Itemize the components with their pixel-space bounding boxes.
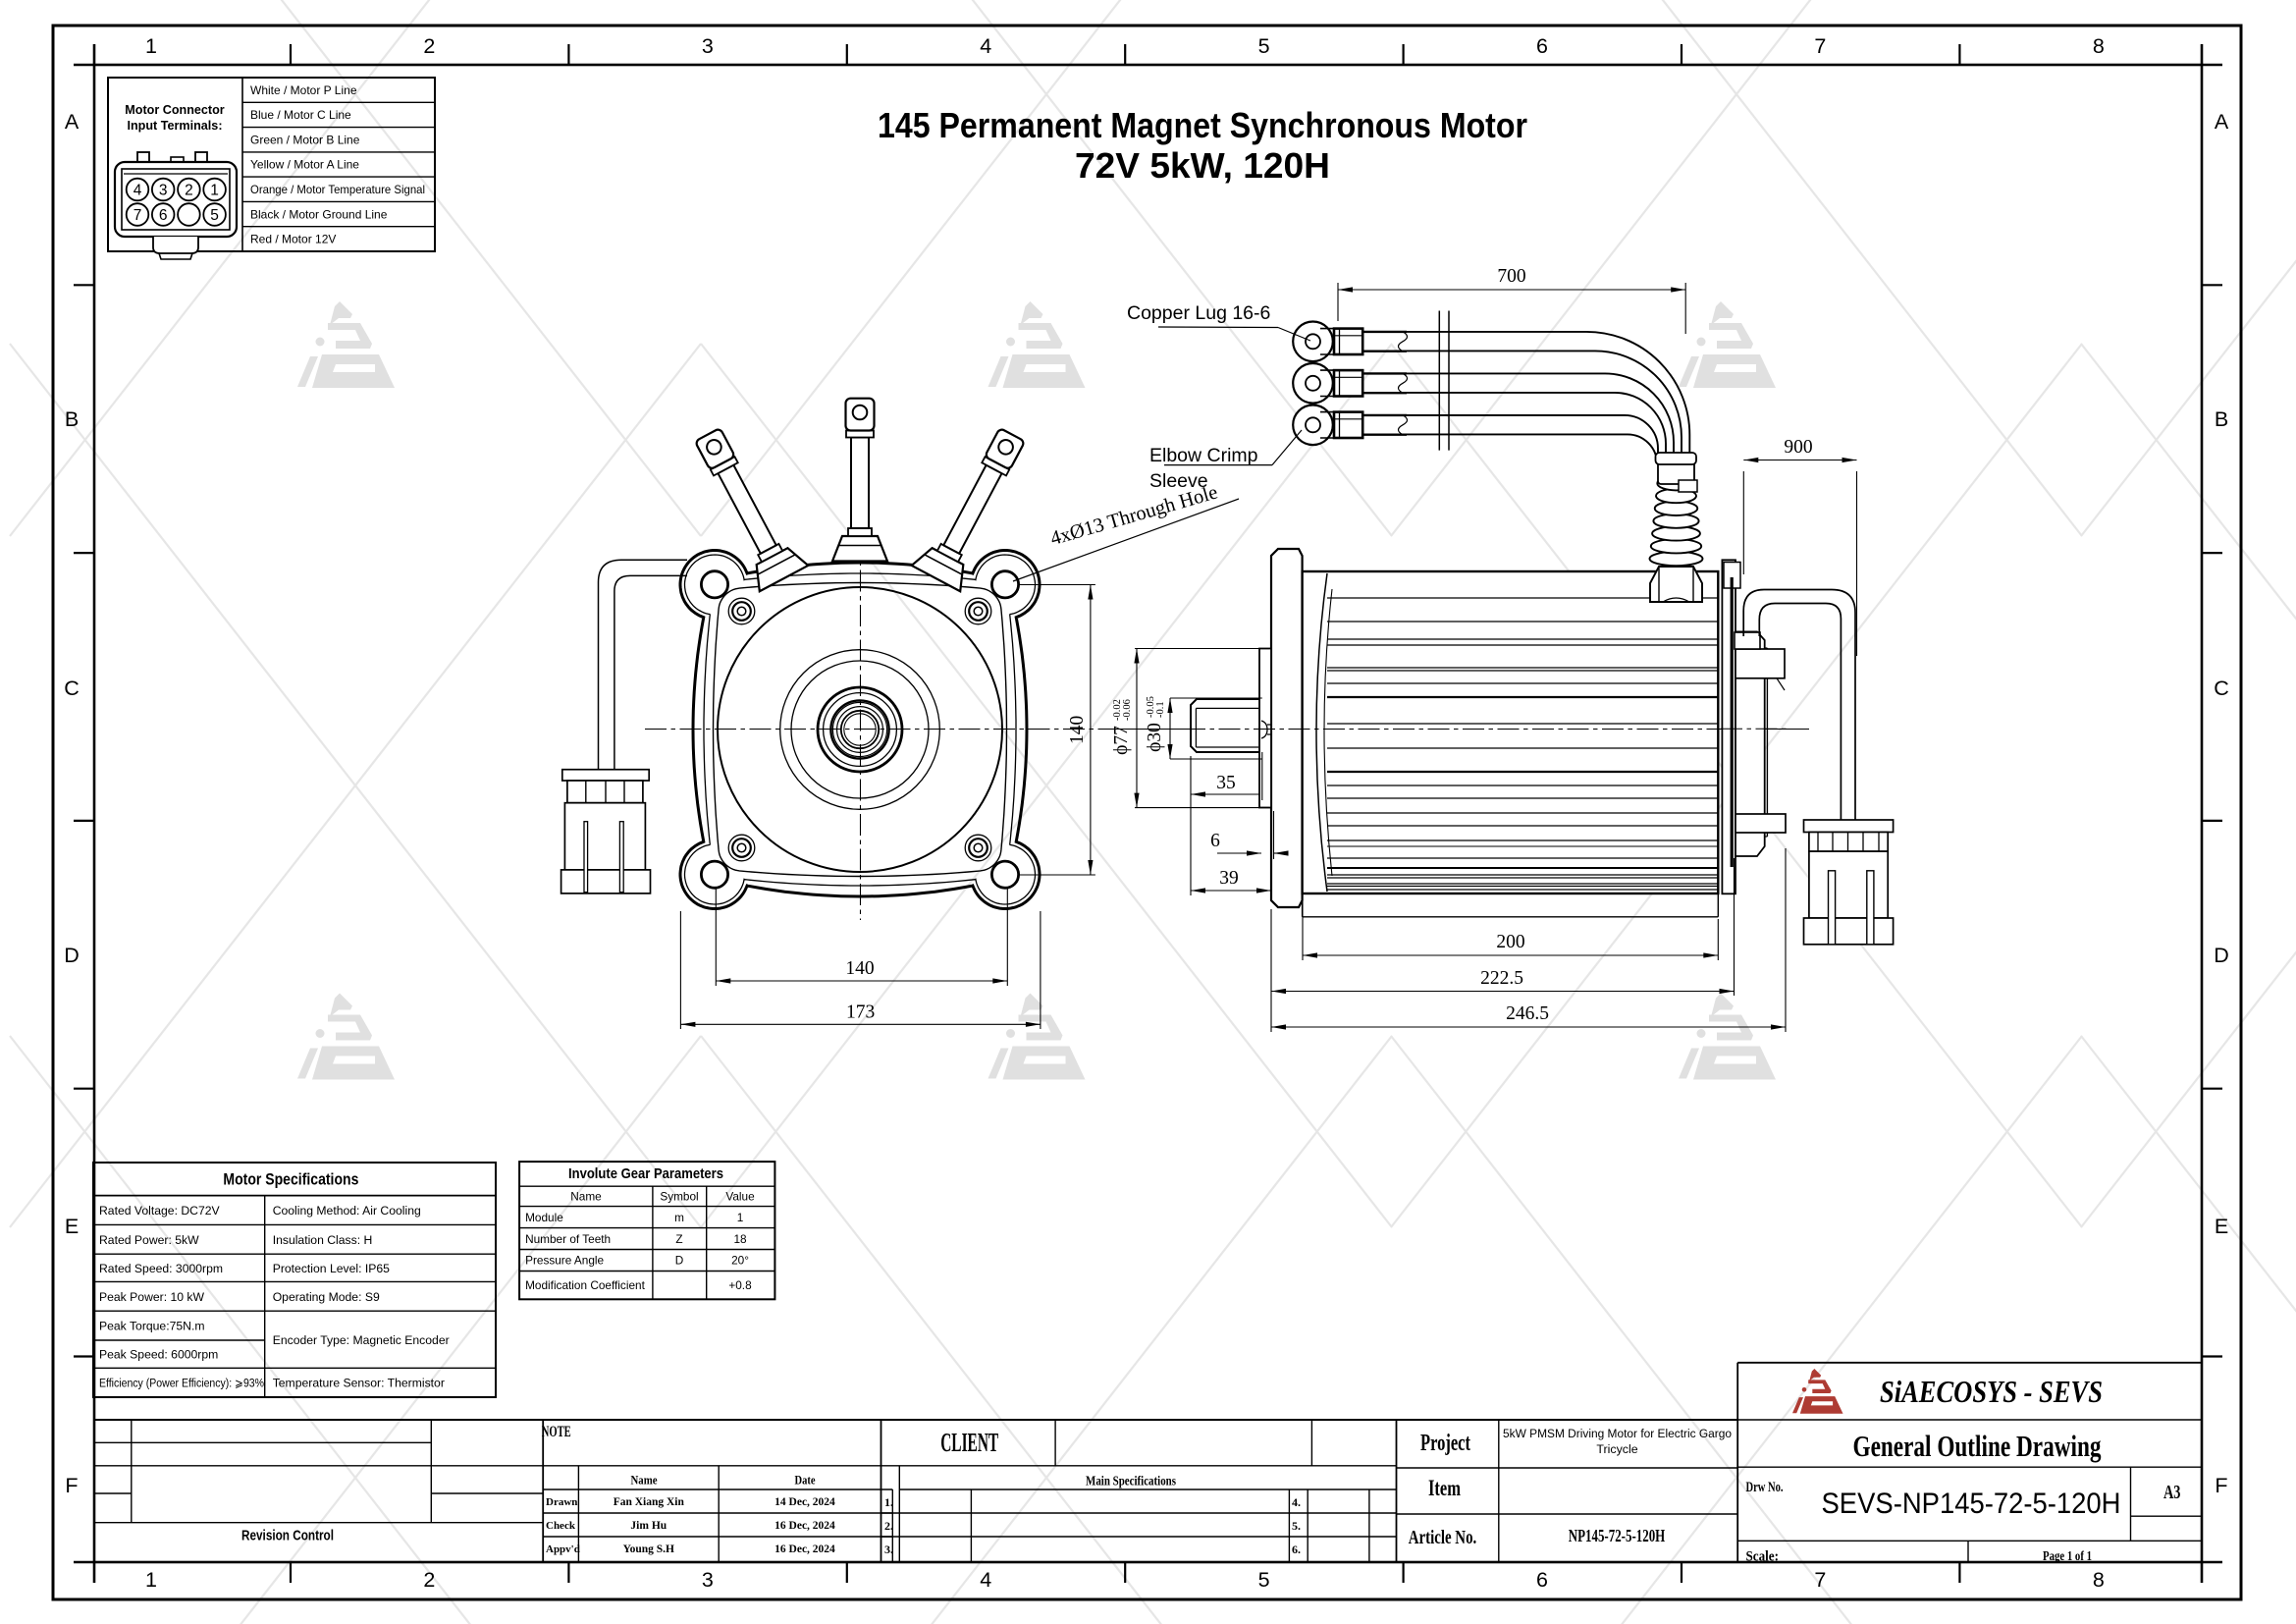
svg-text:16 Dec, 2024: 16 Dec, 2024: [774, 1543, 835, 1555]
svg-text:Efficiency (Power Efficiency):: Efficiency (Power Efficiency): ⩾93%: [99, 1377, 264, 1390]
svg-text:Young S.H: Young S.H: [623, 1543, 674, 1555]
svg-text:4: 4: [980, 34, 991, 58]
svg-text:A3: A3: [2163, 1483, 2181, 1503]
svg-text:Elbow Crimp: Elbow Crimp: [1149, 445, 1258, 466]
svg-text:140: 140: [1067, 716, 1088, 744]
svg-text:Name: Name: [631, 1474, 658, 1488]
svg-text:White / Motor P Line: White / Motor P Line: [250, 83, 357, 97]
svg-text:Operating Mode: S9: Operating Mode: S9: [273, 1290, 380, 1304]
svg-text:Project: Project: [1420, 1431, 1470, 1456]
svg-text:Blue / Motor C Line: Blue / Motor C Line: [250, 108, 351, 122]
svg-text:Modification Coefficient: Modification Coefficient: [525, 1278, 645, 1292]
svg-text:2: 2: [185, 182, 193, 198]
svg-text:4: 4: [133, 182, 142, 198]
svg-text:700: 700: [1497, 266, 1525, 287]
svg-text:1.: 1.: [884, 1495, 893, 1509]
svg-text:Rated Power: 5kW: Rated Power: 5kW: [99, 1233, 199, 1247]
svg-text:B: B: [2215, 407, 2228, 431]
svg-text:Fan Xiang Xin: Fan Xiang Xin: [614, 1496, 685, 1508]
svg-text:Z: Z: [675, 1232, 682, 1246]
svg-text:2: 2: [423, 1568, 435, 1592]
svg-text:173: 173: [846, 1002, 875, 1023]
svg-text:39: 39: [1219, 868, 1239, 889]
svg-text:D: D: [64, 944, 80, 967]
svg-text:Rated Speed: 3000rpm: Rated Speed: 3000rpm: [99, 1262, 223, 1275]
svg-text:900: 900: [1784, 437, 1812, 458]
svg-text:5: 5: [1258, 1568, 1270, 1592]
svg-text:D: D: [675, 1254, 684, 1268]
svg-text:1: 1: [145, 1568, 157, 1592]
svg-text:Value: Value: [725, 1190, 755, 1204]
svg-text:14 Dec, 2024: 14 Dec, 2024: [774, 1496, 835, 1508]
svg-text:1: 1: [737, 1211, 744, 1224]
svg-text:E: E: [2215, 1215, 2228, 1238]
svg-text:+0.8: +0.8: [728, 1278, 752, 1292]
svg-text:16 Dec, 2024: 16 Dec, 2024: [774, 1520, 835, 1532]
svg-text:Name: Name: [570, 1190, 602, 1204]
svg-text:Peak Torque:75N.m: Peak Torque:75N.m: [99, 1320, 205, 1333]
svg-text:C: C: [64, 677, 80, 700]
svg-text:6: 6: [159, 207, 168, 224]
svg-text:General Outline Drawing: General Outline Drawing: [1853, 1429, 2102, 1463]
svg-text:Revision Control: Revision Control: [241, 1528, 334, 1544]
svg-text:Page 1 of 1: Page 1 of 1: [2043, 1549, 2092, 1564]
svg-text:5: 5: [210, 207, 219, 224]
svg-text:Check: Check: [546, 1520, 576, 1532]
svg-text:1: 1: [210, 182, 219, 198]
svg-text:Orange / Motor Temperature Sig: Orange / Motor Temperature Signal: [250, 183, 425, 196]
svg-text:E: E: [65, 1215, 79, 1238]
svg-text:F: F: [65, 1474, 78, 1497]
svg-text:Tricycle: Tricycle: [1596, 1442, 1637, 1456]
svg-text:8: 8: [2093, 1568, 2105, 1592]
svg-text:Item: Item: [1428, 1476, 1461, 1500]
svg-text:NP145-72-5-120H: NP145-72-5-120H: [1569, 1526, 1666, 1545]
svg-text:3: 3: [702, 1568, 714, 1592]
svg-text:Article No.: Article No.: [1409, 1528, 1477, 1548]
svg-text:Cooling Method: Air Cooling: Cooling Method: Air Cooling: [273, 1204, 421, 1218]
svg-text:140: 140: [845, 958, 874, 979]
svg-text:6: 6: [1536, 34, 1548, 58]
svg-text:NOTE: NOTE: [542, 1424, 571, 1440]
svg-text:2: 2: [423, 34, 435, 58]
svg-text:C: C: [2214, 677, 2229, 700]
svg-text:6: 6: [1536, 1568, 1548, 1592]
svg-text:4.: 4.: [1292, 1495, 1301, 1509]
svg-text:3: 3: [159, 182, 168, 198]
svg-text:Motor Connector: Motor Connector: [125, 103, 225, 117]
svg-text:18: 18: [733, 1232, 747, 1246]
svg-text:Module: Module: [525, 1211, 563, 1224]
svg-text:20°: 20°: [731, 1254, 749, 1268]
svg-text:Number of Teeth: Number of Teeth: [525, 1232, 611, 1246]
svg-text:Peak Speed: 6000rpm: Peak Speed: 6000rpm: [99, 1348, 218, 1362]
svg-text:222.5: 222.5: [1480, 968, 1523, 989]
svg-text:-0.06: -0.06: [1122, 699, 1133, 721]
svg-text:8: 8: [2093, 34, 2105, 58]
svg-text:7: 7: [1814, 1568, 1826, 1592]
svg-text:145 Permanent Magnet Synchrono: 145 Permanent Magnet Synchronous Motor: [878, 105, 1527, 145]
svg-text:Jim Hu: Jim Hu: [630, 1520, 667, 1532]
svg-text:CLIENT: CLIENT: [940, 1428, 998, 1457]
svg-text:-0.1: -0.1: [1155, 701, 1166, 718]
svg-text:Black / Motor Ground Line: Black / Motor Ground Line: [250, 207, 388, 221]
svg-text:200: 200: [1496, 932, 1524, 952]
svg-text:Symbol: Symbol: [660, 1190, 698, 1204]
svg-text:Appv'd: Appv'd: [546, 1543, 580, 1555]
svg-text:6: 6: [1210, 831, 1220, 851]
svg-text:Copper Lug 16-6: Copper Lug 16-6: [1127, 302, 1270, 324]
svg-text:Sleeve: Sleeve: [1149, 470, 1208, 492]
svg-text:Input Terminals:: Input Terminals:: [127, 119, 222, 133]
svg-text:35: 35: [1216, 773, 1236, 793]
svg-text:Main Specifications: Main Specifications: [1086, 1474, 1176, 1489]
svg-text:A: A: [65, 110, 80, 134]
svg-text:SiAECOSYS - SEVS: SiAECOSYS - SEVS: [1880, 1374, 2103, 1409]
svg-text:Involute Gear Parameters: Involute Gear Parameters: [568, 1165, 723, 1182]
svg-text:4: 4: [980, 1568, 991, 1592]
svg-text:Yellow / Motor A Line: Yellow / Motor A Line: [250, 158, 359, 172]
svg-text:7: 7: [1814, 34, 1826, 58]
svg-text:SEVS-NP145-72-5-120H: SEVS-NP145-72-5-120H: [1822, 1488, 2121, 1520]
svg-text:7: 7: [133, 207, 142, 224]
svg-text:A: A: [2215, 110, 2229, 134]
svg-text:Peak Power: 10 kW: Peak Power: 10 kW: [99, 1290, 205, 1304]
svg-text:Rated Voltage: DC72V: Rated Voltage: DC72V: [99, 1204, 221, 1218]
svg-text:Drw No.: Drw No.: [1746, 1480, 1784, 1495]
svg-text:1: 1: [145, 34, 157, 58]
svg-text:Encoder Type: Magnetic Encoder: Encoder Type: Magnetic Encoder: [273, 1333, 450, 1347]
svg-text:Drawn: Drawn: [546, 1496, 577, 1508]
svg-text:Protection Level: IP65: Protection Level: IP65: [273, 1262, 390, 1275]
svg-text:ϕ77: ϕ77: [1111, 726, 1132, 755]
svg-text:2.: 2.: [884, 1519, 893, 1533]
svg-text:3.: 3.: [884, 1543, 893, 1556]
svg-text:D: D: [2214, 944, 2229, 967]
svg-text:Motor Specifications: Motor Specifications: [223, 1170, 358, 1189]
svg-text:Scale:: Scale:: [1746, 1549, 1780, 1565]
svg-text:Red / Motor 12V: Red / Motor 12V: [250, 233, 336, 246]
svg-text:72V 5kW, 120H: 72V 5kW, 120H: [1075, 145, 1330, 186]
svg-text:246.5: 246.5: [1506, 1003, 1549, 1024]
svg-text:Green / Motor B Line: Green / Motor B Line: [250, 133, 360, 146]
svg-text:Date: Date: [795, 1474, 816, 1488]
svg-text:m: m: [674, 1211, 684, 1224]
svg-text:Pressure Angle: Pressure Angle: [525, 1254, 604, 1268]
svg-text:F: F: [2215, 1474, 2227, 1497]
svg-text:5: 5: [1258, 34, 1270, 58]
svg-text:5kW PMSM Driving Motor for Ele: 5kW PMSM Driving Motor for Electric Garg…: [1503, 1427, 1732, 1440]
svg-text:Insulation Class: H: Insulation Class: H: [273, 1233, 373, 1247]
svg-text:5.: 5.: [1292, 1519, 1301, 1533]
svg-text:ϕ30: ϕ30: [1145, 723, 1165, 752]
svg-text:3: 3: [702, 34, 714, 58]
svg-text:Temperature Sensor: Thermistor: Temperature Sensor: Thermistor: [273, 1377, 445, 1390]
svg-text:6.: 6.: [1292, 1543, 1301, 1556]
svg-text:B: B: [65, 407, 79, 431]
